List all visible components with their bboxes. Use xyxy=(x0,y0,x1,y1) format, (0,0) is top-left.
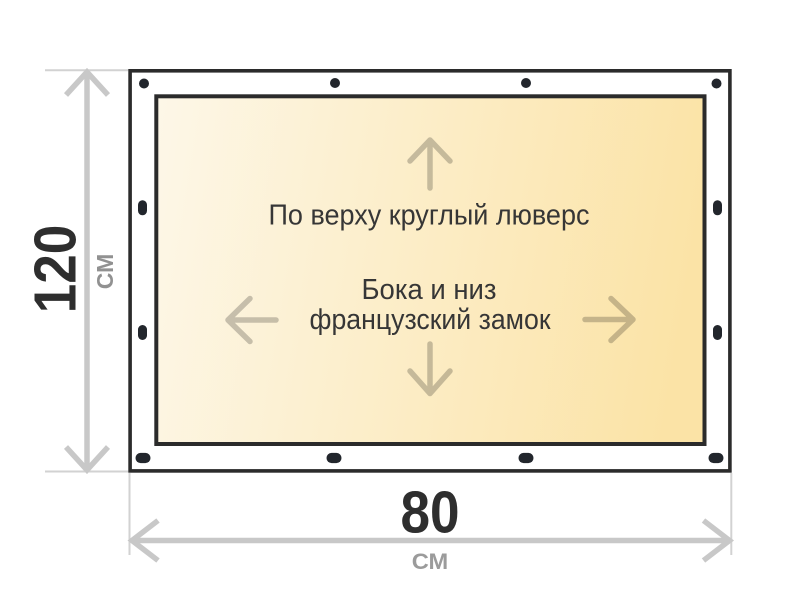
svg-text:французский замок: французский замок xyxy=(310,304,551,336)
svg-text:Бока и низ: Бока и низ xyxy=(362,274,497,306)
svg-text:СМ: СМ xyxy=(92,254,118,289)
svg-text:СМ: СМ xyxy=(412,549,449,574)
svg-text:120: 120 xyxy=(22,225,88,314)
svg-text:80: 80 xyxy=(400,479,459,545)
svg-text:По верху круглый люверс: По верху круглый люверс xyxy=(269,200,590,232)
